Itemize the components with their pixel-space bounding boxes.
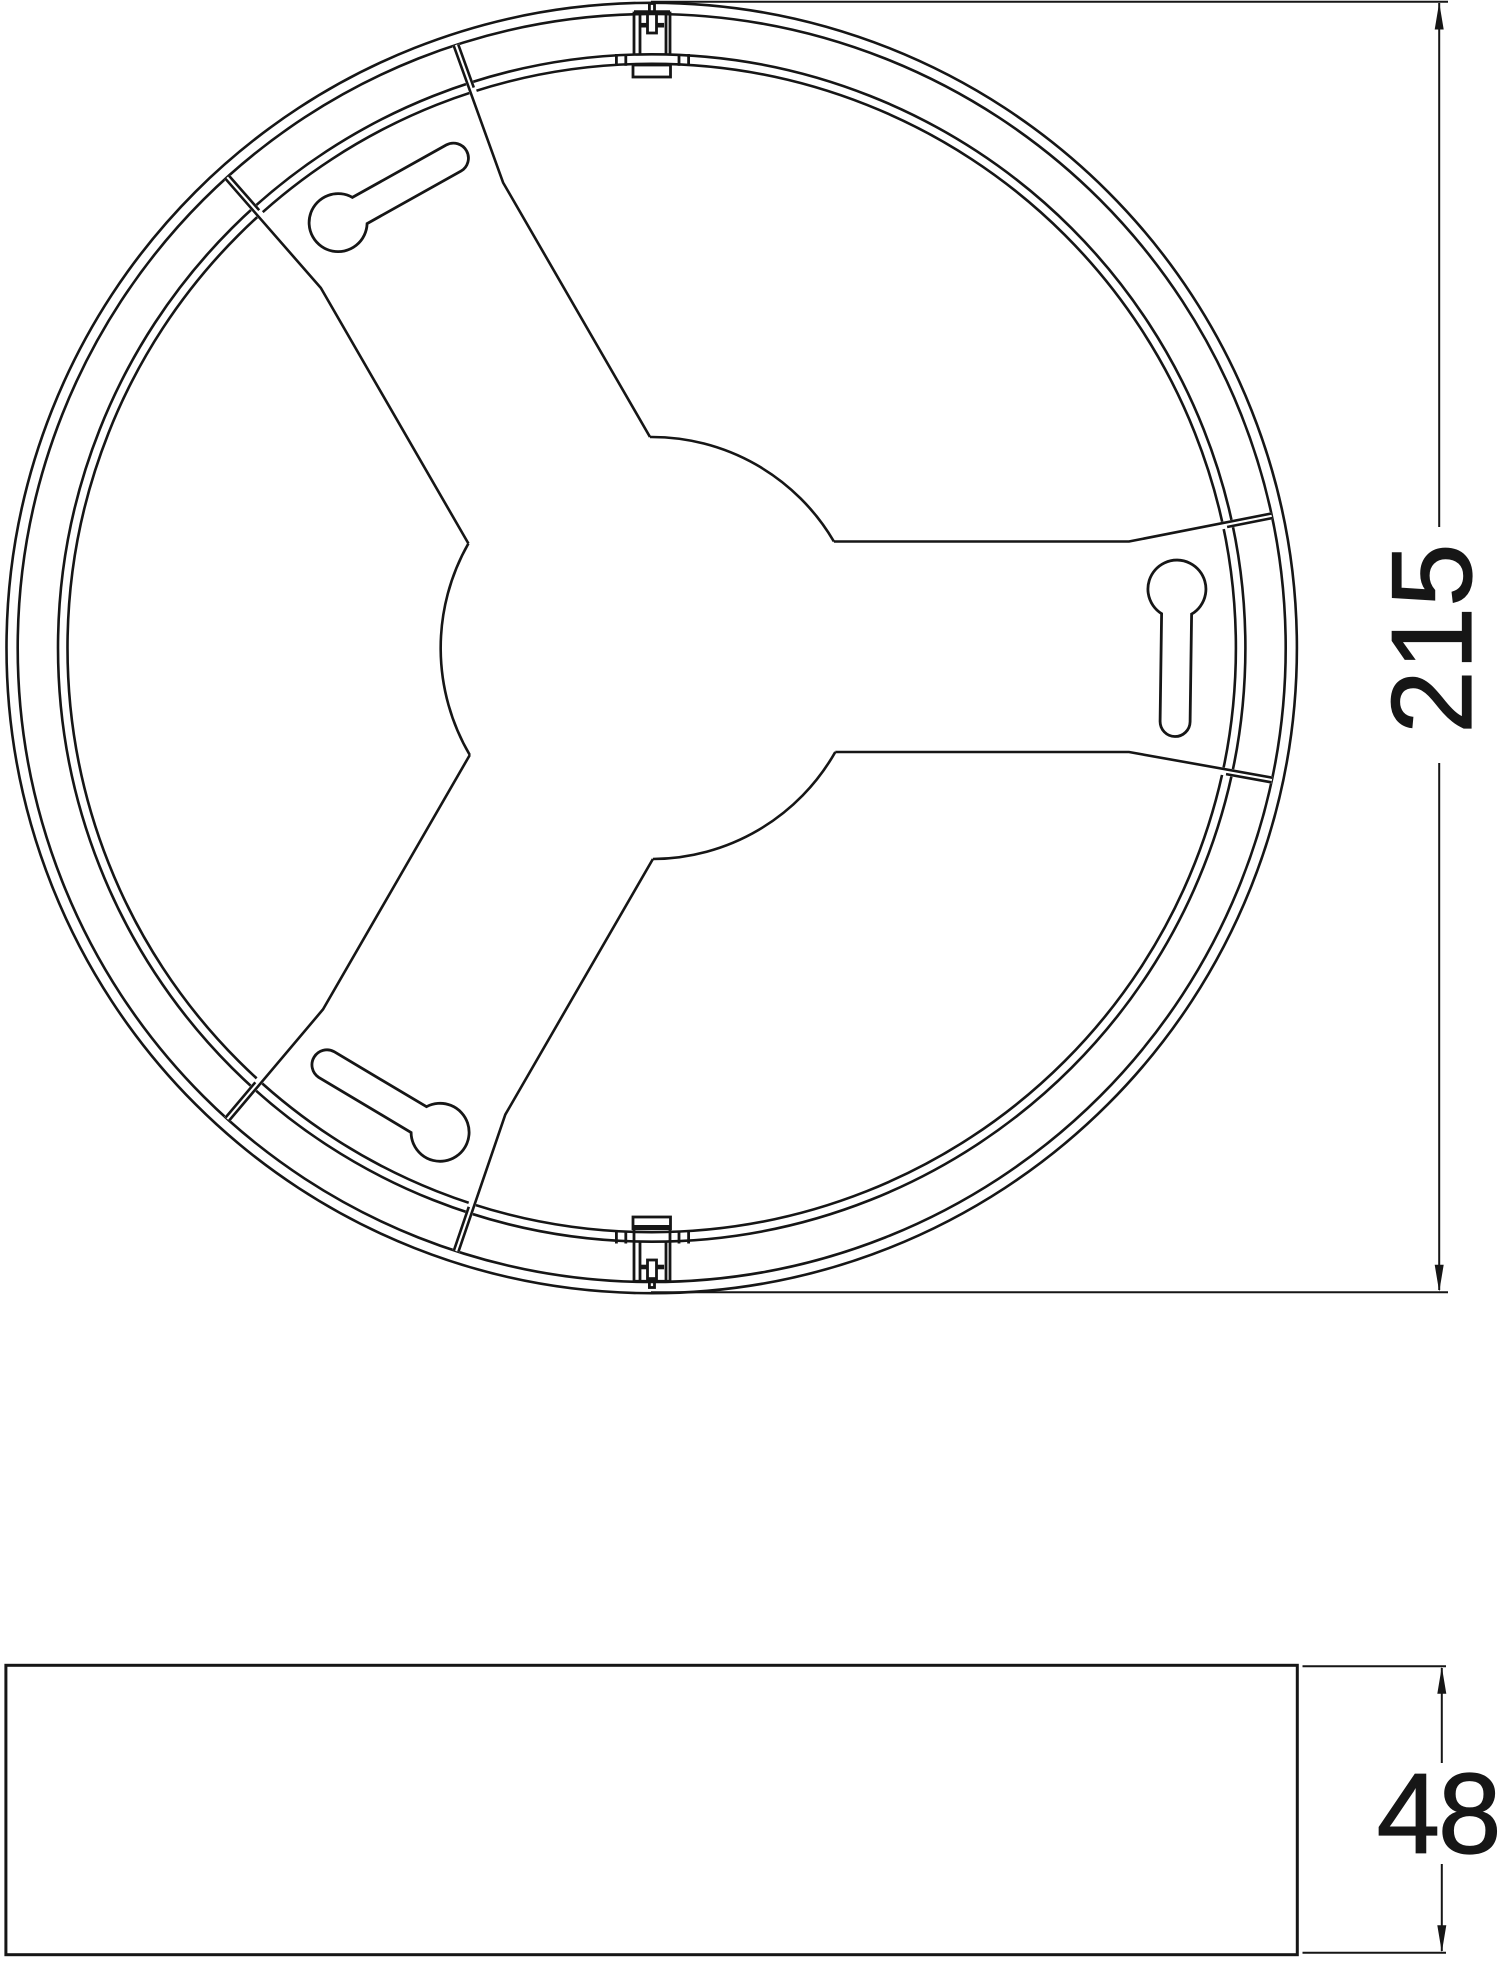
- svg-text:48: 48: [1377, 1751, 1500, 1878]
- svg-text:215: 215: [1369, 543, 1496, 733]
